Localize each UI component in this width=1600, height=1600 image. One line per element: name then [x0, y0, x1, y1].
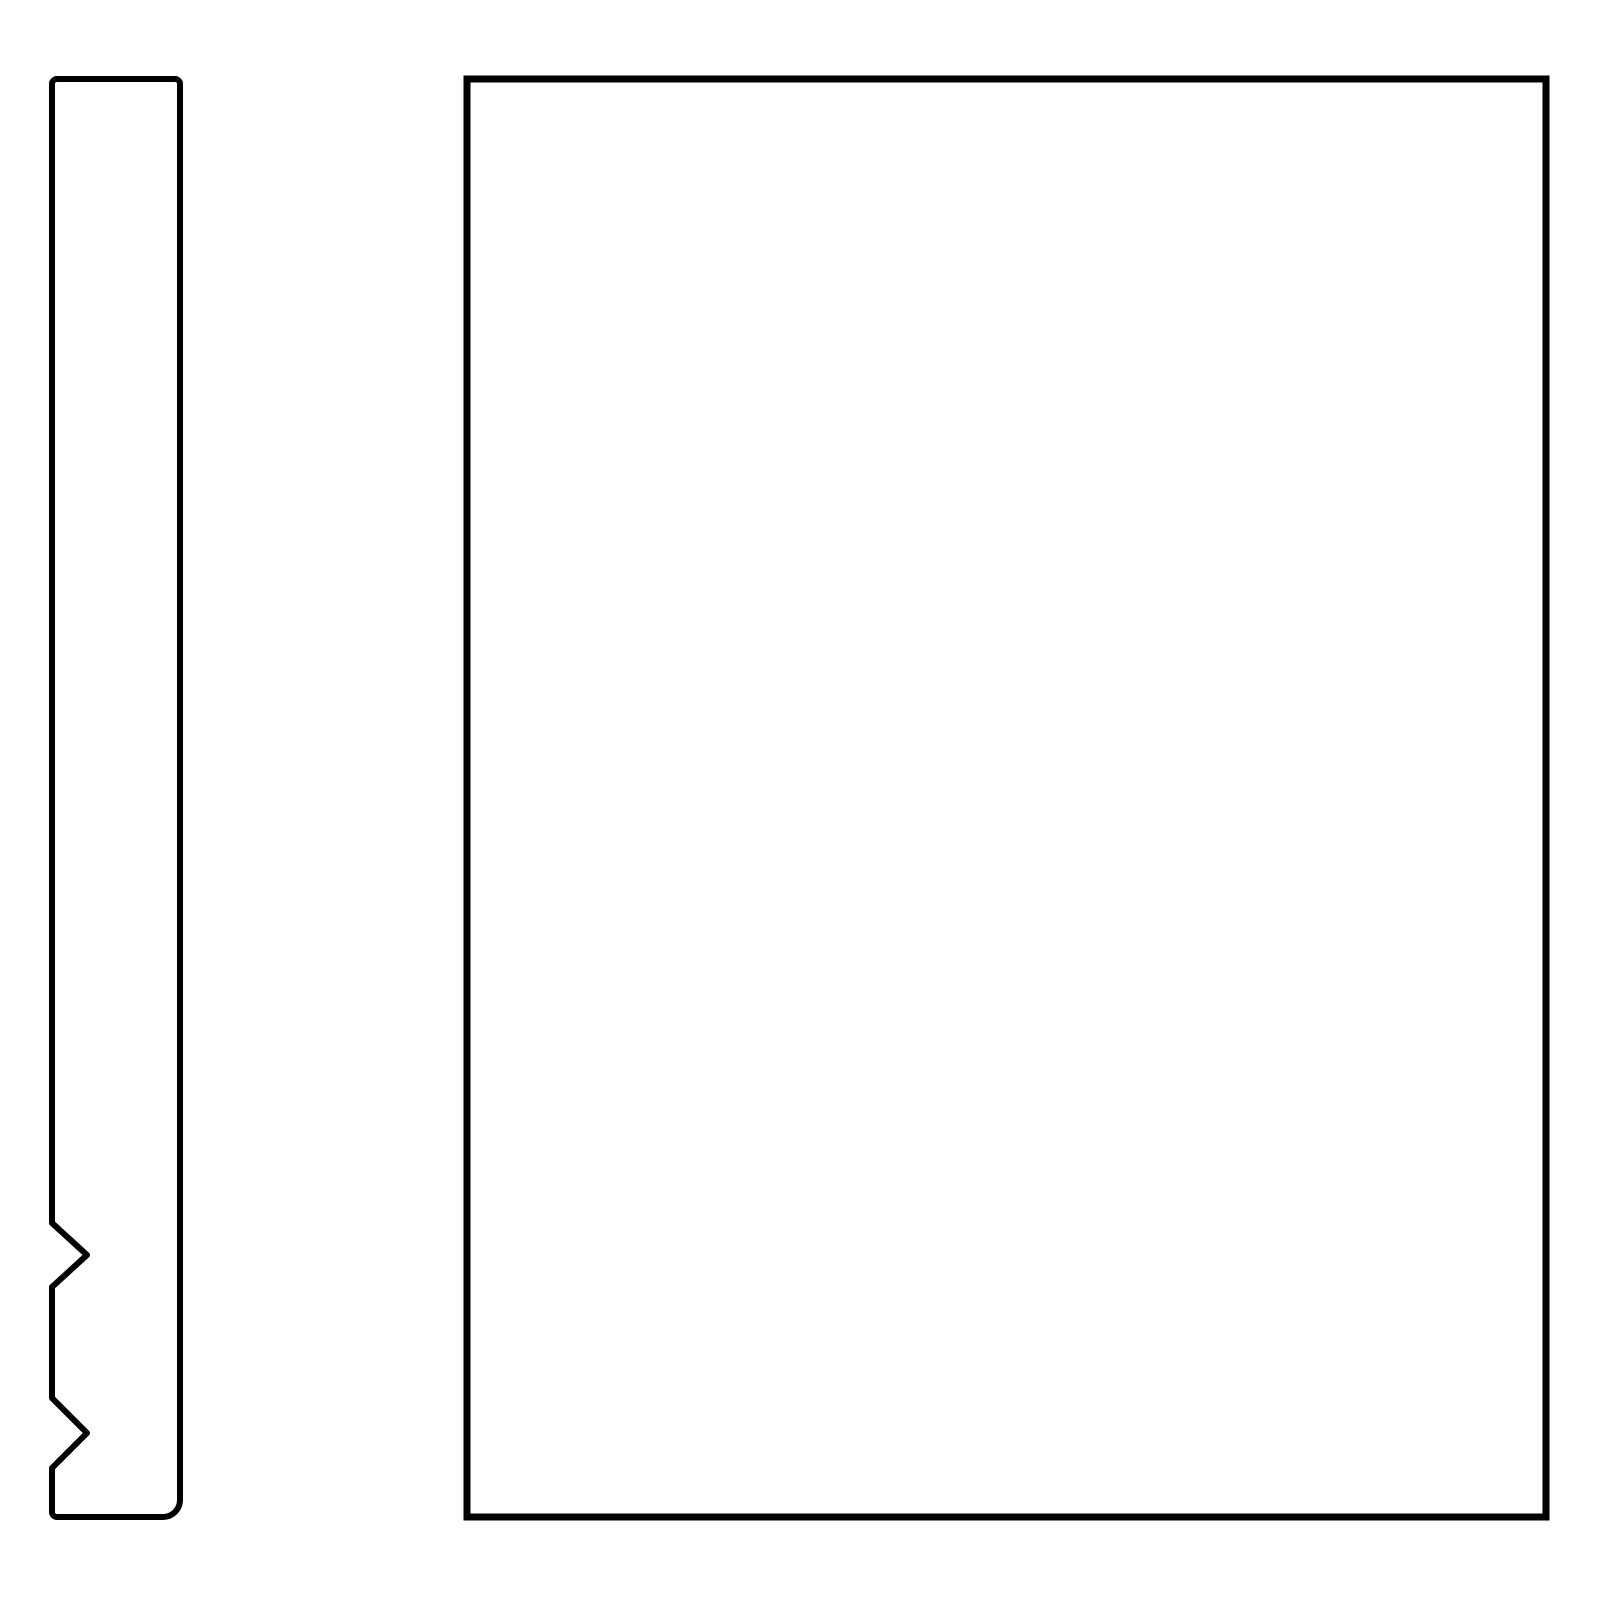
- drawing-canvas: [0, 0, 1600, 1600]
- technical-line-drawing: [0, 0, 1600, 1600]
- background-rect: [0, 0, 1600, 1600]
